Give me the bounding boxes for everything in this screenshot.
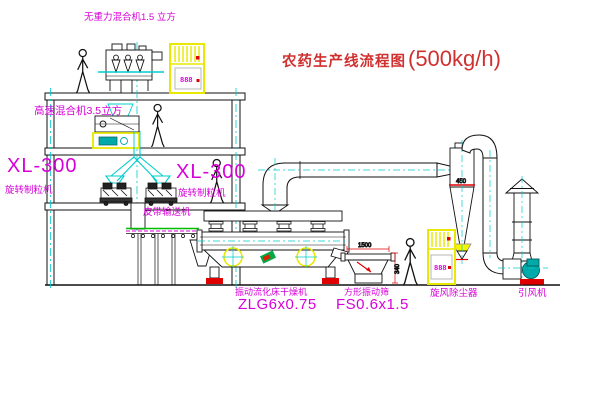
cyclone-dimension: 450 <box>456 179 467 185</box>
zero-gravity-mixer-drawing <box>98 44 164 93</box>
cabinet-display: 888 <box>434 265 447 273</box>
granulator-left-name: 旋转制粒机 <box>5 186 53 196</box>
induced-draft-fan-drawing <box>498 259 548 285</box>
granulator-mid-model: XL-300 <box>176 162 247 182</box>
control-cabinet-icon: 888 <box>428 230 455 284</box>
cyclone-label: 旋风除尘器 <box>430 289 478 299</box>
granulator-mid-name: 旋转制粒机 <box>178 189 226 199</box>
sieve-model-label: FS0.6x1.5 <box>336 297 409 312</box>
granulator-drawing-right <box>145 183 177 206</box>
high-speed-mixer-label: 高速混合机3.5立方 <box>34 106 122 117</box>
fan-label: 引风机 <box>518 289 547 299</box>
gravity-mixer-label: 无重力混合机1.5 立方 <box>84 13 176 23</box>
title-capacity: (500kg/h) <box>408 46 501 72</box>
title-text: 农药生产线流程图 <box>282 50 406 71</box>
diagram-title: 农药生产线流程图 (500kg/h) <box>282 46 501 72</box>
sieve-length-dimension: 1500 <box>358 243 372 249</box>
fluid-bed-dryer-drawing <box>197 205 349 284</box>
cabinet-display: 888 <box>180 77 193 85</box>
exhaust-duct-drawing <box>258 158 456 212</box>
belt-conveyor-label: 皮带输送机 <box>143 208 191 218</box>
dryer-model-label: ZLG6x0.75 <box>238 297 317 312</box>
granulator-left-model: XL-300 <box>7 156 78 176</box>
flow-diagram-canvas: 888 <box>0 0 600 403</box>
control-cabinet-icon: 888 <box>170 44 204 93</box>
sieve-height-dimension: 340 <box>395 263 401 274</box>
granulator-drawing-left <box>100 183 132 206</box>
